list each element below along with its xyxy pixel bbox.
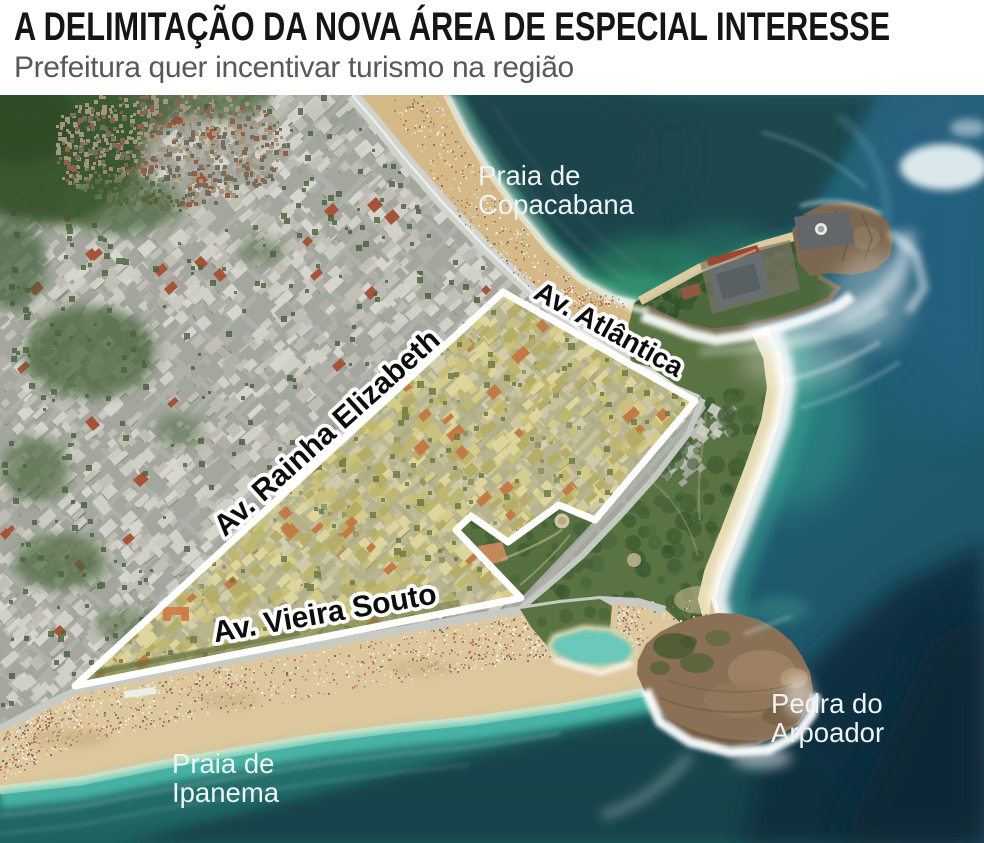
svg-text:Pedra doArpoador: Pedra doArpoador (771, 688, 884, 748)
svg-text:Praia deIpanema: Praia deIpanema (172, 748, 280, 808)
